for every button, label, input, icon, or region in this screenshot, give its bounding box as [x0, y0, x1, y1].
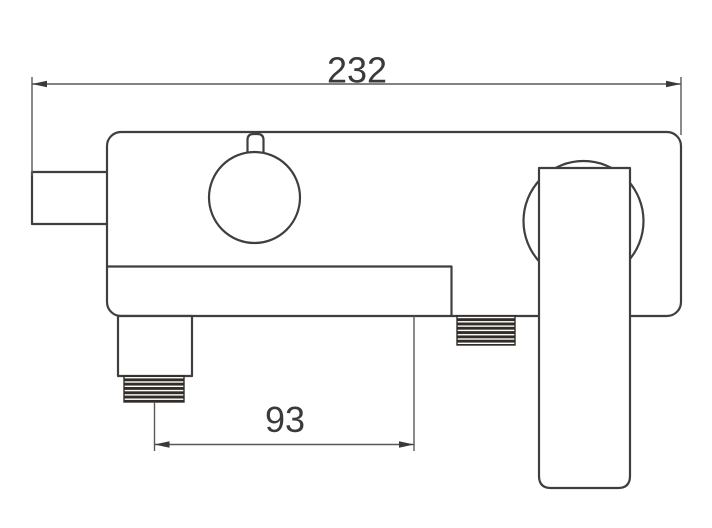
- drawing-svg: 232 93: [0, 0, 712, 528]
- wall-supply-pipe: [32, 172, 107, 224]
- lever-handle: [539, 168, 630, 488]
- spout-offset-label: 93: [265, 399, 305, 440]
- spout-body: [118, 316, 192, 376]
- overall-width-label: 232: [327, 50, 387, 91]
- arrowhead-right-icon: [666, 81, 681, 88]
- arrowhead-left-icon: [155, 441, 170, 448]
- temperature-knob: [209, 152, 300, 243]
- arrowhead-left-icon: [32, 81, 47, 88]
- dimension-spout-offset: 93: [155, 316, 415, 451]
- spout-outlet-thread: [124, 376, 184, 402]
- shower-outlet-thread: [457, 316, 515, 345]
- arrowhead-right-icon: [399, 441, 414, 448]
- faucet-technical-drawing: 232 93: [0, 0, 712, 528]
